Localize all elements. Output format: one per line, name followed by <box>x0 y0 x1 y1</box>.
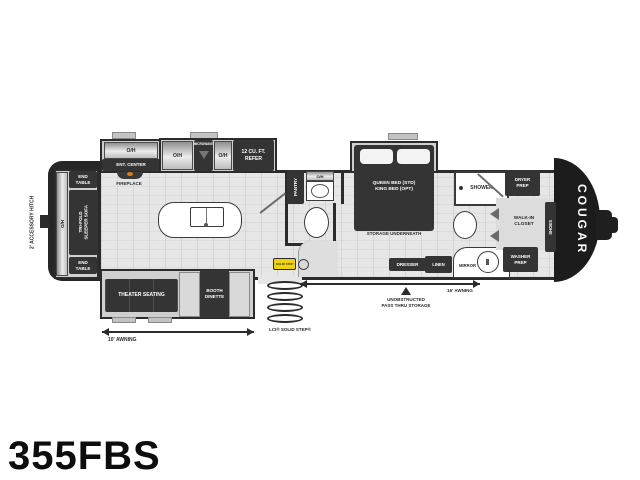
dryer-prep: DRYER PREP <box>505 170 540 196</box>
microwave-range: MICROWAVE <box>194 140 213 171</box>
refrigerator: 12 CU. FT. REFER <box>233 140 274 171</box>
shoes-cabinet: SHOES <box>545 202 556 252</box>
walk-in-closet-label: WALK-IN CLOSET <box>498 216 550 228</box>
dinette-bench-right <box>229 272 250 317</box>
tri-fold-sleeper-sofa: TRI-FOLD SLEEPER SOFA <box>69 190 98 255</box>
sofa-label: TRI-FOLD SLEEPER SOFA <box>78 205 89 240</box>
rear-overhead-cabinet: O/H <box>56 172 68 276</box>
dresser: DRESSER <box>389 258 426 271</box>
kitchen-oh-left-label: O/H <box>173 153 182 159</box>
step-oval-1 <box>267 281 303 290</box>
closet-chevron-bottom <box>490 230 499 242</box>
awning-16-arrow <box>300 283 480 285</box>
step-oval-4 <box>267 314 303 323</box>
shower-head-icon <box>459 186 463 190</box>
slide-topper-tab-bed <box>388 133 418 140</box>
faucet-icon <box>204 223 208 227</box>
fireplace-flame-icon <box>127 172 133 176</box>
front-toilet <box>453 211 477 239</box>
shoes-label: SHOES <box>548 220 553 235</box>
linen-cabinet: LINEN <box>425 256 452 273</box>
midbath-overhead: O/H <box>306 171 334 181</box>
pass-thru-marker-icon <box>401 287 411 295</box>
kitchen-overhead-left: O/H <box>162 141 193 170</box>
bed-label: QUEEN BED (STD) KING BED (OPT) <box>356 181 432 193</box>
pantry: PANTRY <box>287 170 304 204</box>
floorplan-canvas: 2' ACCESSORY HITCH COUGAR O/H END TABLE … <box>0 0 640 480</box>
pillow-left <box>360 149 393 164</box>
awning-16-label: 16' AWNING <box>430 288 490 294</box>
bedroom-wall <box>341 170 344 204</box>
fireplace-label: FIREPLACE <box>103 181 155 187</box>
rear-oh-label: O/H <box>60 220 65 228</box>
entertainment-center: ENT. CENTER <box>102 159 160 171</box>
range-burner-icon <box>199 151 209 159</box>
step-oval-2 <box>267 292 303 301</box>
theater-seating: THEATER SEATING <box>105 279 178 312</box>
slide-topper-tab-bottom2 <box>148 317 172 323</box>
pillow-right <box>397 149 430 164</box>
vanity-faucet-icon <box>486 259 489 265</box>
solid-step-label: LCI® SOLID STEP® <box>252 327 328 333</box>
microwave-label: MICROWAVE <box>194 142 214 146</box>
ent-overhead-cabinet: O/H <box>104 142 158 159</box>
step-oval-3 <box>267 303 303 312</box>
mirror-label: MIRROR <box>454 263 481 268</box>
accessory-hitch-bar <box>40 215 49 228</box>
end-table-top: END TABLE <box>69 171 97 188</box>
lci-circle-icon <box>298 259 309 270</box>
pantry-label: PANTRY <box>293 178 299 196</box>
slide-topper-tab-bottom1 <box>112 317 136 323</box>
solid-step-logo: SOLID STEP <box>273 258 296 270</box>
end-table-bottom: END TABLE <box>69 257 97 274</box>
midbath-wall-right <box>333 203 336 246</box>
midbath-oh-label: O/H <box>316 174 323 179</box>
pass-thru-label: UNOBSTRUCTED PASS THRU STORAGE <box>352 297 460 308</box>
washer-prep: WASHER PREP <box>503 247 538 272</box>
slide-topper-tab <box>112 132 136 139</box>
midbath-sink-basin <box>311 184 329 198</box>
awning-10-arrow <box>102 331 254 333</box>
solid-step-logo-text: SOLID STEP <box>276 262 294 266</box>
front-cap: COUGAR <box>554 158 600 282</box>
kitchen-overhead-right: O/H <box>214 141 232 170</box>
shower-label: SHOWER <box>470 185 493 191</box>
kitchen-oh-right-label: O/H <box>219 153 228 159</box>
awning-10-label: 10' AWNING <box>100 337 164 343</box>
kingpin-nub <box>610 217 618 233</box>
dinette-bench-left <box>179 272 200 317</box>
brand-vertical-label: COUGAR <box>575 184 589 255</box>
entry-steps <box>267 281 303 325</box>
booth-dinette: BOOTH DINETTE <box>200 270 229 318</box>
model-number: 355FBS <box>8 434 161 479</box>
midbath-toilet <box>304 207 329 238</box>
accessory-hitch-label: 2' ACCESSORY HITCH <box>27 168 38 276</box>
ent-oh-label: O/H <box>127 148 136 154</box>
storage-underneath-label: STORAGE UNDERNEATH <box>346 231 442 237</box>
